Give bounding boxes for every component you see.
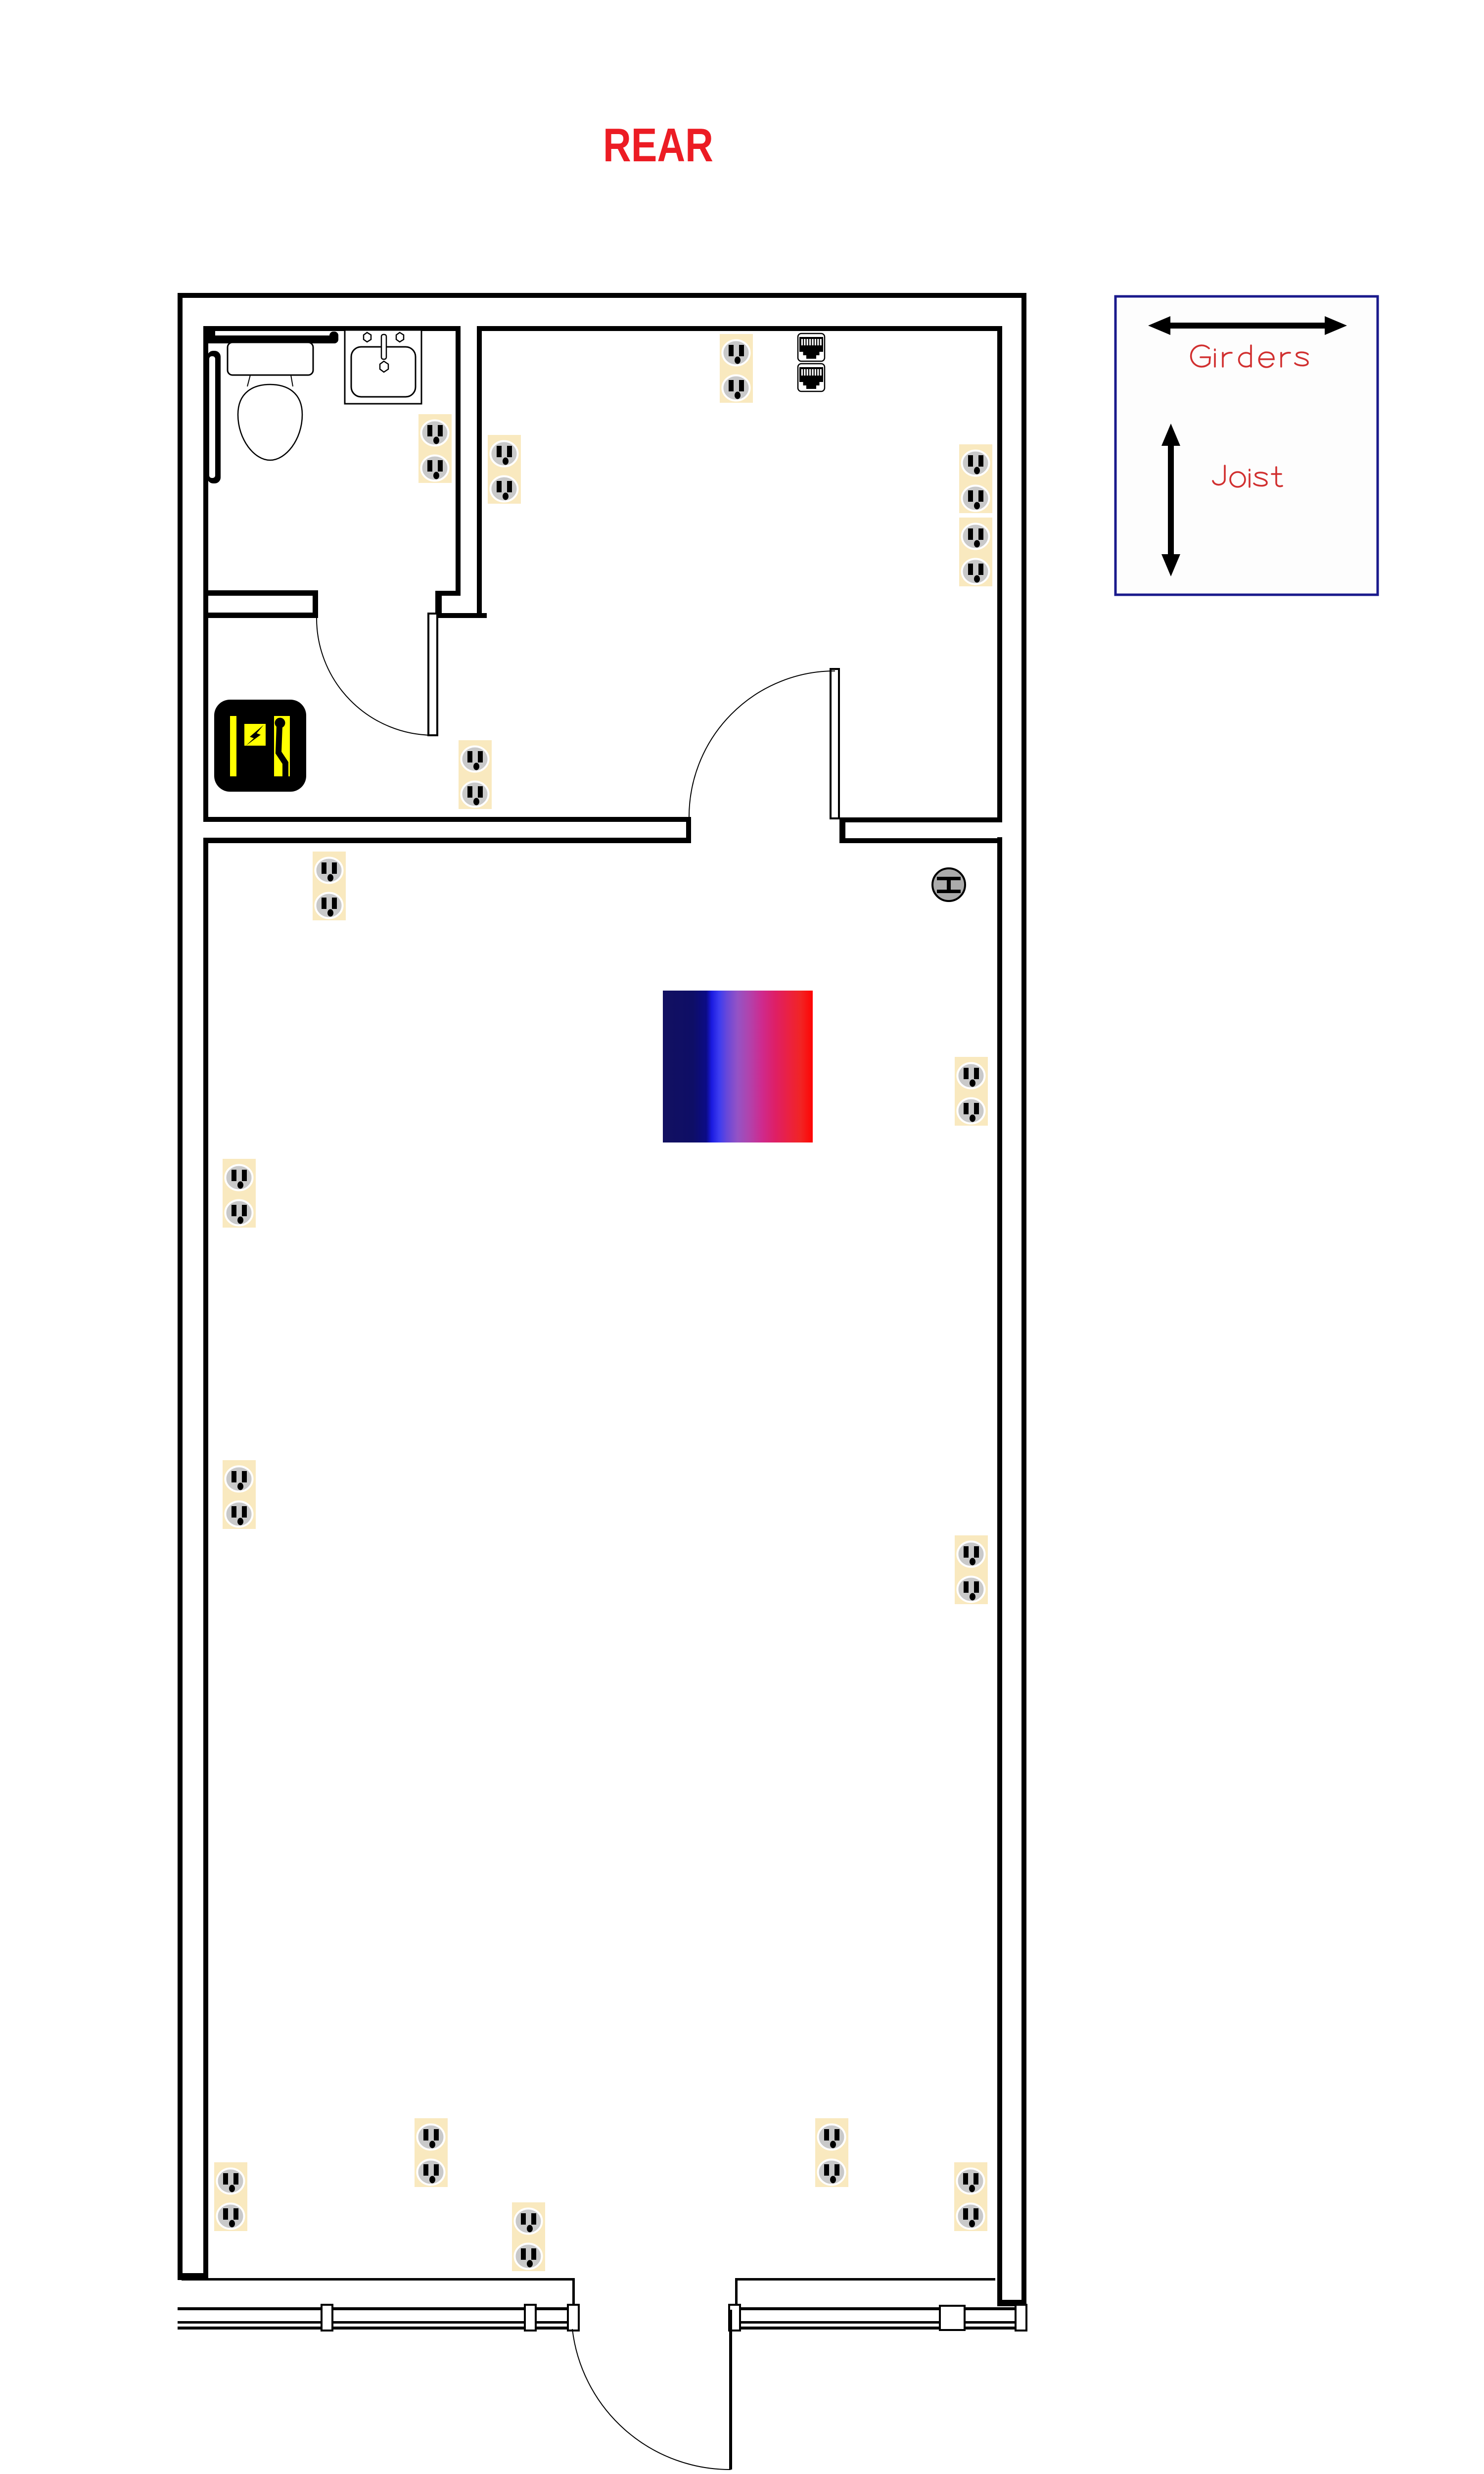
svg-text:REAR: REAR [603, 119, 713, 172]
